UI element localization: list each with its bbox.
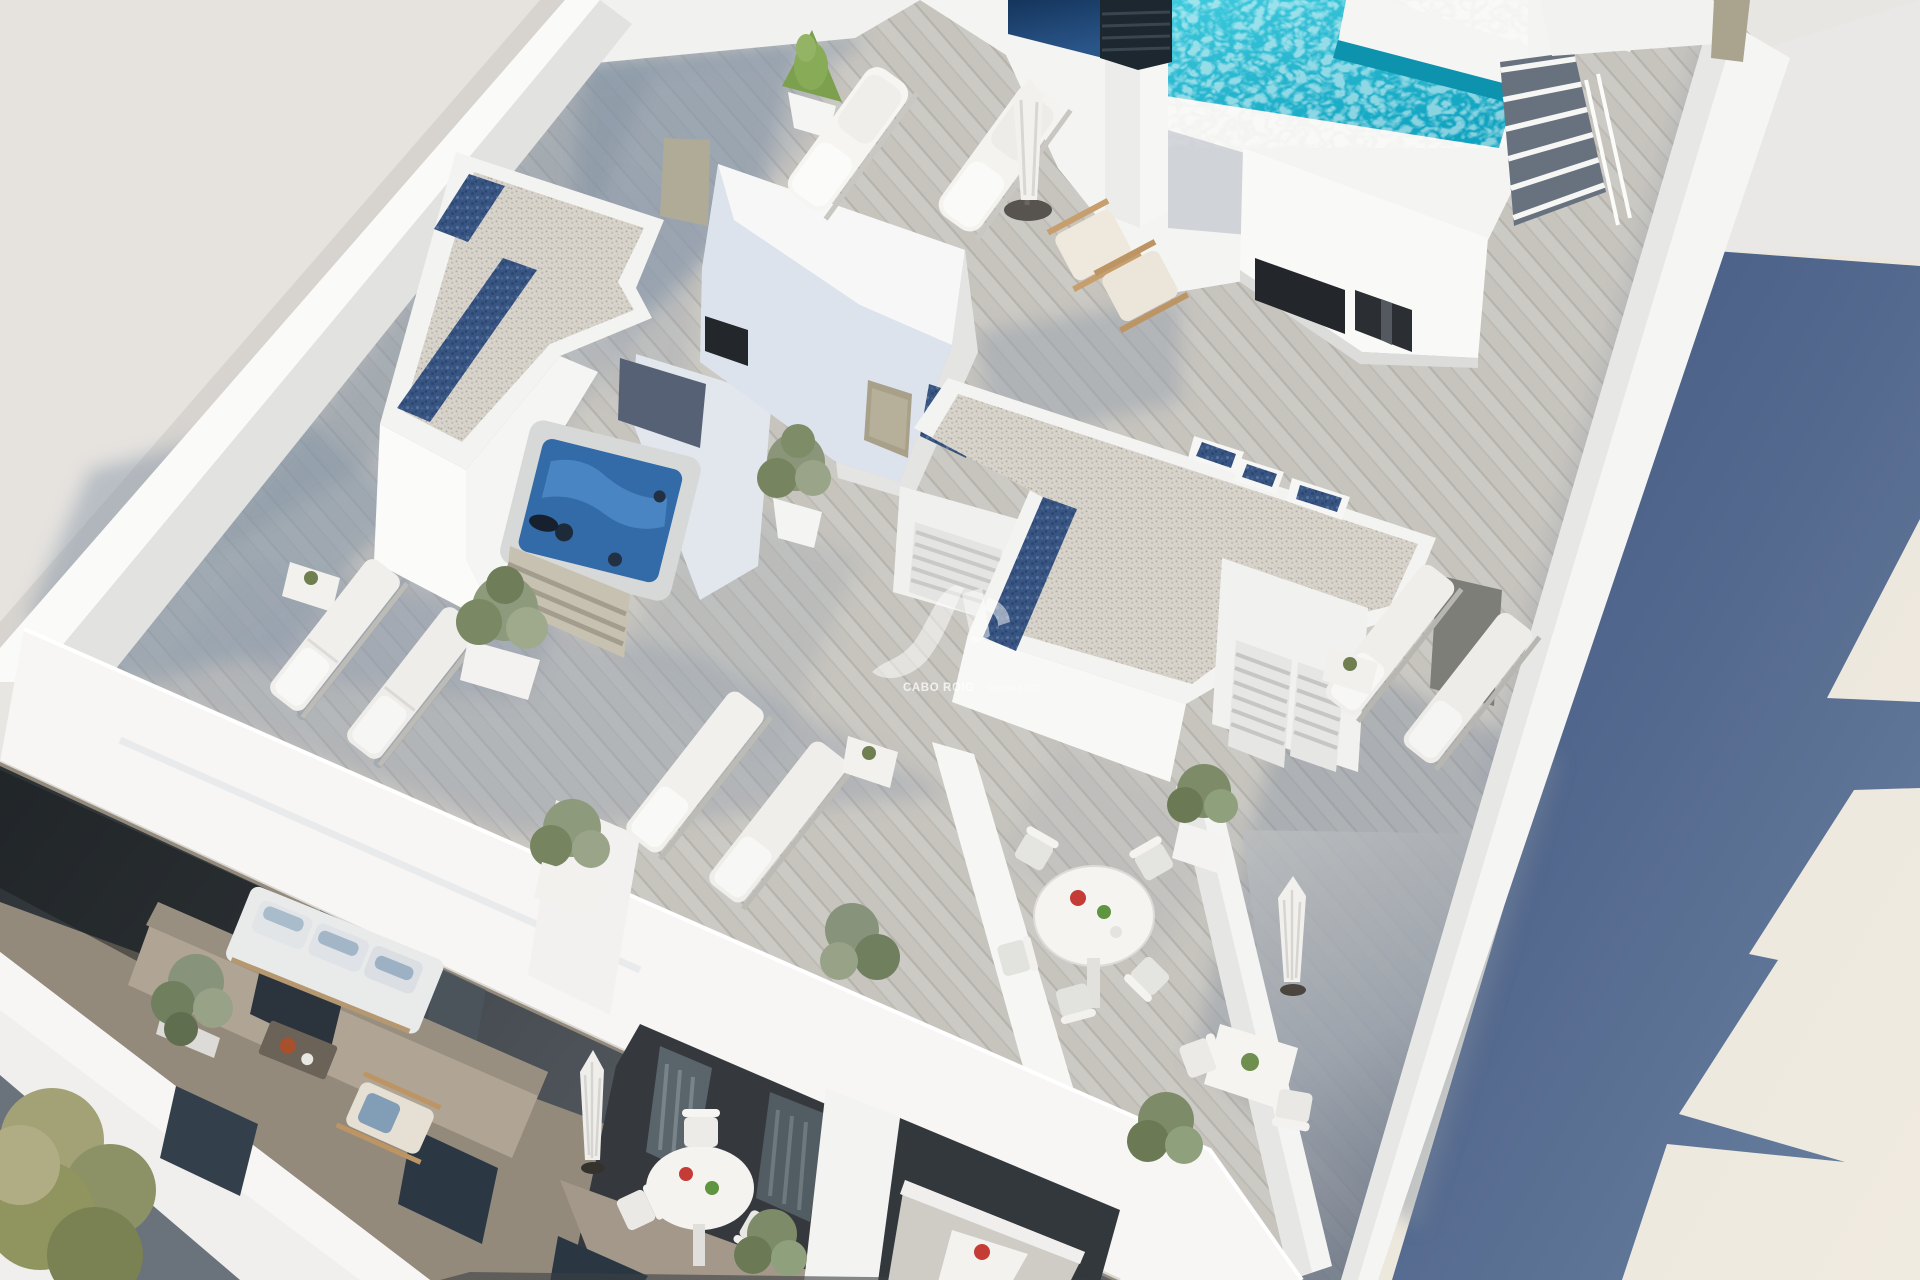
svg-text:CABO ROIG: CABO ROIG	[903, 682, 975, 694]
svg-text:Desde 1970: Desde 1970	[988, 683, 1039, 694]
